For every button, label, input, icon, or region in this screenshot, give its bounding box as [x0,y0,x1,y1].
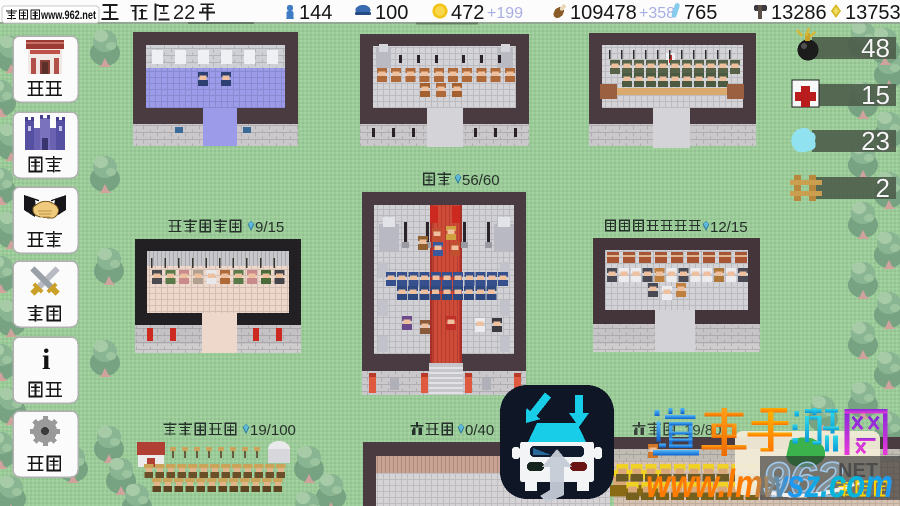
svg-text:100: 100 [375,2,408,24]
svg-text:22: 22 [173,2,195,24]
svg-text:23: 23 [861,126,890,156]
svg-text:0/40: 0/40 [465,422,494,439]
svg-text:109478: 109478 [570,2,637,24]
svg-text:19/100: 19/100 [250,422,296,439]
svg-text:472: 472 [451,2,484,24]
svg-text:www.962.net: www.962.net [40,10,96,22]
svg-text:+199: +199 [487,5,523,22]
svg-text:144: 144 [299,2,332,24]
svg-text:9/15: 9/15 [255,219,284,236]
svg-text:15: 15 [861,80,890,110]
svg-text:12/15: 12/15 [710,219,748,236]
svg-text:i: i [42,343,50,376]
svg-text:www.lmwsz.com: www.lmwsz.com [646,463,893,506]
svg-text:13753: 13753 [845,2,900,24]
svg-text:+358: +358 [639,5,675,22]
svg-text:13286: 13286 [771,2,827,24]
svg-text:56/60: 56/60 [462,172,500,189]
svg-text:48: 48 [861,33,890,63]
svg-text:2: 2 [876,173,890,203]
svg-text:765: 765 [684,2,717,24]
